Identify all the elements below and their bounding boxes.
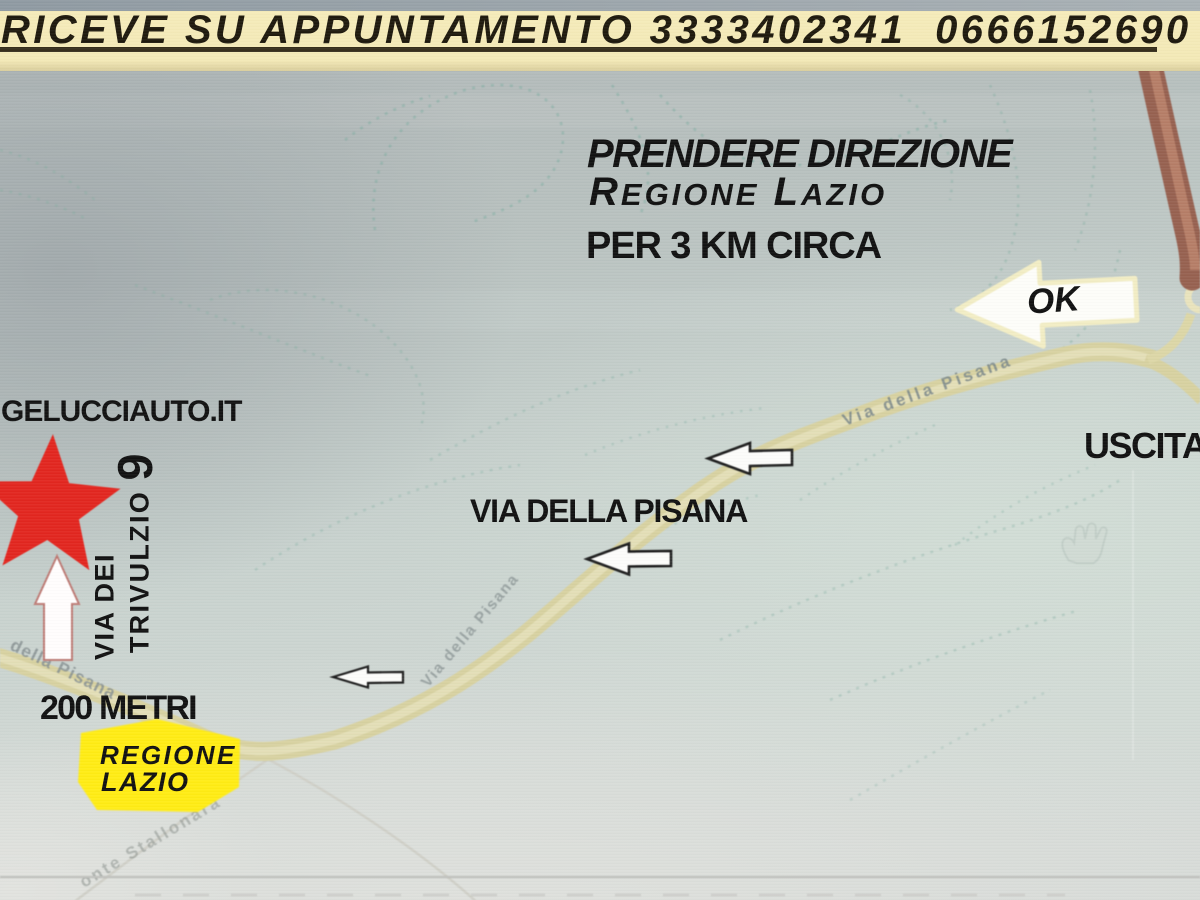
svg-text:Via della Pisana: Via della Pisana xyxy=(840,351,1015,430)
